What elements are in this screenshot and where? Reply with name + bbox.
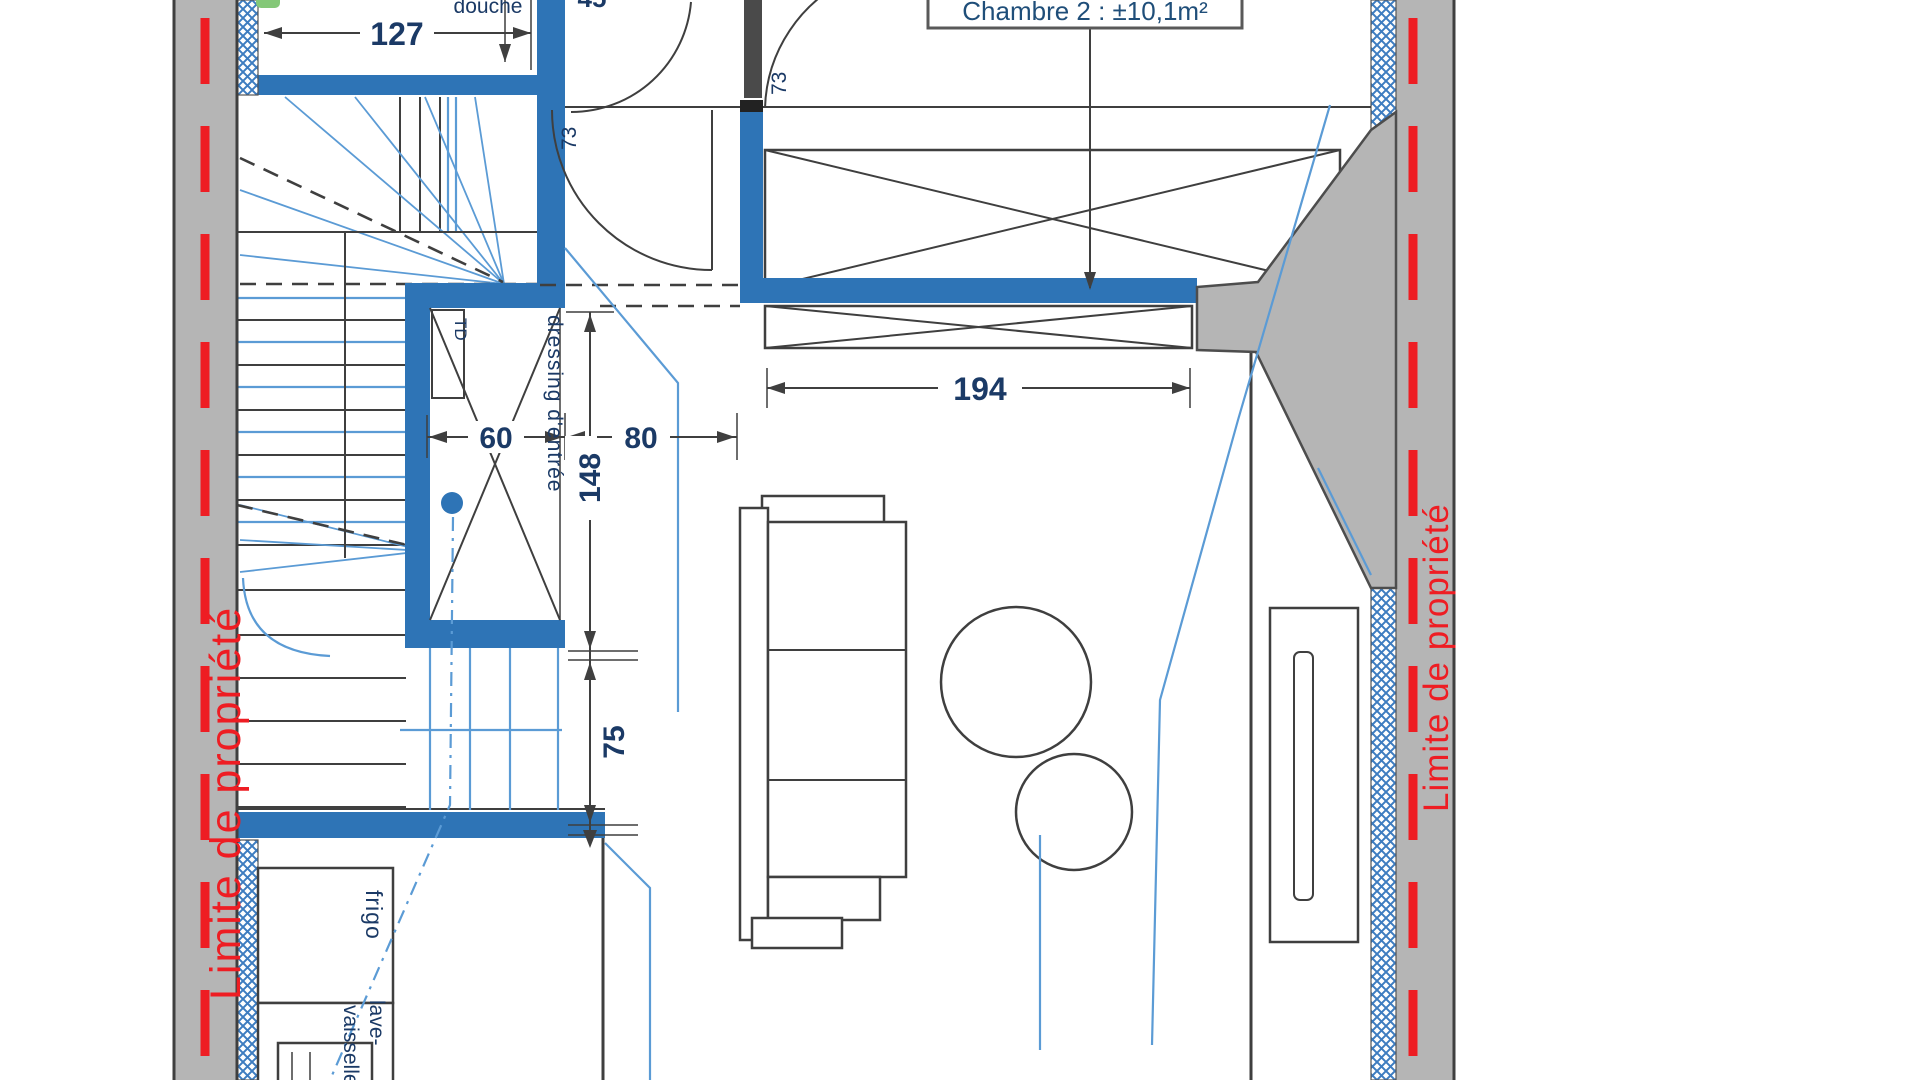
light-point-icon — [441, 492, 463, 514]
dim-194-value: 194 — [953, 371, 1007, 407]
green-marker-icon — [256, 0, 280, 8]
hatch-left-top — [237, 0, 258, 95]
dim-148-value: 148 — [574, 453, 607, 503]
sideboard-inner-slot — [1294, 652, 1313, 900]
wall-dressing-left — [405, 283, 430, 648]
hatch-right-top — [1371, 0, 1396, 130]
wall-bedroom-bottom — [740, 278, 1197, 303]
dim-45-clipped: 45 — [578, 0, 607, 13]
wall-vertical-hall-left — [537, 0, 565, 308]
bedroom-door-stop — [740, 100, 763, 112]
td-label: TD — [451, 318, 470, 341]
wall-douche-bottom — [237, 75, 563, 95]
round-table-large — [941, 607, 1091, 757]
chambre2-label: Chambre 2 : ±10,1m² — [962, 0, 1208, 26]
limite-left-label: Limite de propriété — [202, 606, 250, 1000]
lave-label1-group: lave- — [365, 1000, 388, 1046]
hatch-right-bottom — [1371, 588, 1396, 1080]
limite-right-label: Limite de propriété — [1417, 503, 1456, 812]
wall-bedroom-left — [740, 110, 763, 303]
dim-75-group: 75 — [598, 725, 631, 758]
sofa-seat-bottom — [768, 877, 880, 920]
bedroom-door-jamb — [744, 0, 762, 98]
frigo-label-group: frigo — [361, 890, 387, 940]
lave-label2-group: vaisselle — [339, 1005, 362, 1080]
dim-127-value: 127 — [370, 16, 423, 52]
frigo-label: frigo — [361, 890, 387, 940]
douche-label: douche — [454, 0, 523, 18]
sofa-armrest-top — [762, 496, 884, 524]
wall-stairwell-bottom — [405, 620, 565, 648]
dim-73-bedroom-group: 73 — [768, 72, 791, 95]
dim-73-hall-value: 73 — [558, 127, 581, 150]
td-label-group: TD — [451, 318, 470, 341]
round-table-small — [1016, 754, 1132, 870]
dressing-label-group: dressing d'entrée — [543, 315, 566, 492]
dim-60-value: 60 — [479, 422, 512, 455]
lave-vaisselle-label-line2: vaisselle — [339, 1005, 362, 1080]
sofa-seats — [768, 522, 906, 877]
lave-vaisselle-label-line1: lave- — [365, 1000, 388, 1046]
dim-73-hall-group: 73 — [558, 127, 581, 150]
limite-left-group: Limite de propriété — [202, 606, 250, 1000]
floor-plan: 127 60 80 194 148 75 73 73 45 douch — [0, 0, 1920, 1080]
dim-80-value: 80 — [624, 422, 657, 455]
dressing-label: dressing d'entrée — [543, 315, 566, 492]
dim-75-value: 75 — [598, 725, 631, 758]
limite-right-group: Limite de propriété — [1417, 503, 1456, 812]
wall-kitchen-top — [237, 812, 605, 838]
sofa-armrest-bottom — [752, 918, 842, 948]
sofa-backrest — [740, 508, 768, 940]
dim-73-bedroom-value: 73 — [768, 72, 791, 95]
